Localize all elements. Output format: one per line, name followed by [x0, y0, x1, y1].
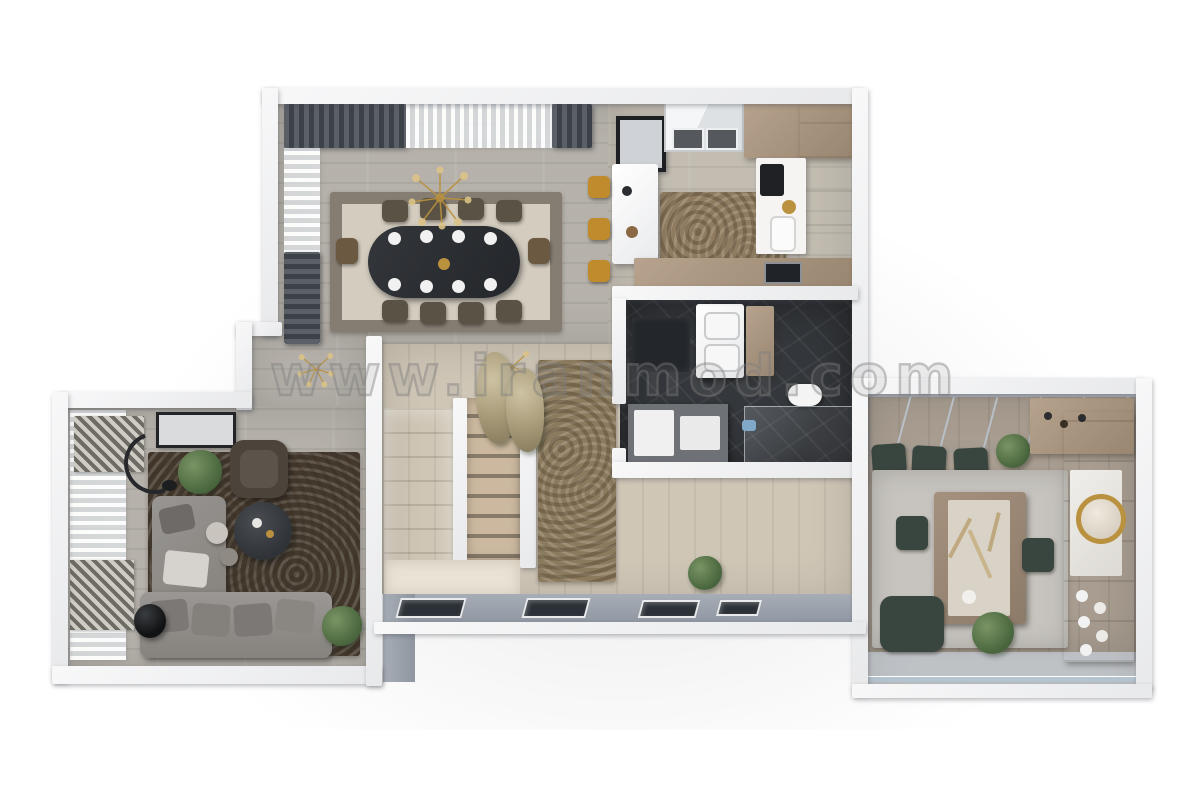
kitchen-window-mullion [706, 128, 738, 150]
coffee-machine [760, 164, 784, 196]
bathroom-shelf [746, 306, 774, 376]
shower-glass-screen [744, 406, 854, 464]
terrace-glass-railing [868, 676, 1136, 682]
drawer-front [634, 410, 674, 456]
kitchen-sink [770, 216, 796, 252]
display-plate [1078, 616, 1090, 628]
place-setting [420, 280, 433, 293]
wall-familyroom-west [852, 378, 868, 694]
place-setting [484, 232, 497, 245]
table-centerpiece [438, 258, 450, 270]
place-setting [388, 278, 401, 291]
display-plate [1094, 602, 1106, 614]
place-setting [452, 280, 465, 293]
family-armchair [880, 596, 944, 652]
drawer-front [680, 416, 720, 450]
wall-lounge-north [60, 392, 252, 408]
coffee-table-decor [252, 518, 262, 528]
bar-stool [588, 260, 610, 282]
gold-pendant-light-icon [296, 350, 336, 388]
kitchen-window-mullion [672, 128, 704, 150]
family-side-chair [1022, 538, 1054, 572]
lamp-head [162, 480, 177, 491]
wall-familyroom-north [852, 378, 1142, 394]
wall-lounge-west [52, 392, 68, 682]
kitchen-base-cabinet-run [634, 258, 854, 288]
dining-drape-top-right [552, 104, 592, 148]
sofa-cushion [191, 603, 231, 638]
family-side-chair [896, 516, 928, 550]
dining-chair [420, 302, 446, 324]
wall-bathroom-north [612, 286, 858, 300]
dining-chair [496, 300, 522, 322]
wall-south-edge [374, 622, 866, 634]
stair-landing [384, 560, 520, 596]
stair-divider-wall [453, 398, 467, 568]
place-setting [388, 232, 401, 245]
south-window [716, 600, 762, 616]
bar-stool [588, 176, 610, 198]
wall-lounge-south [52, 666, 382, 684]
wall-main-west [262, 88, 278, 336]
vanity-basin [704, 312, 740, 340]
wall-north [262, 88, 862, 104]
coffee-table-decor [266, 530, 274, 538]
side-table [206, 522, 228, 544]
side-table [220, 548, 238, 566]
place-setting [452, 230, 465, 243]
display-plate [1096, 630, 1108, 642]
place-setting [420, 230, 433, 243]
dining-drape-left-bottom [284, 252, 320, 344]
toilet [788, 384, 822, 406]
gold-bowl [782, 200, 796, 214]
place-setting [484, 278, 497, 291]
bathroom-bench [632, 318, 690, 372]
sofa-cushion [274, 598, 315, 634]
dining-sheer-top [406, 104, 552, 148]
sofa-cushion [233, 603, 273, 638]
built-in-oven [764, 262, 802, 284]
sofa-throw [162, 550, 209, 588]
sputnik-chandelier-icon [404, 166, 476, 230]
armchair-cushion [240, 450, 278, 488]
bath-accessory-blue [742, 420, 756, 431]
dining-chair [496, 200, 522, 222]
kitchen-island [612, 164, 658, 264]
display-plate [1076, 590, 1088, 602]
wall-familyroom-south [852, 684, 1152, 698]
display-plate [1080, 644, 1092, 656]
black-vase [134, 604, 166, 638]
dining-drape-top-left [284, 104, 406, 148]
hall-runner-rug [538, 360, 616, 582]
vanity-basin [704, 344, 740, 372]
south-window [638, 600, 701, 618]
island-decor [626, 226, 638, 238]
coffee-table [234, 502, 292, 560]
slat-blind [70, 560, 134, 630]
bottle [1044, 412, 1052, 420]
south-window [395, 598, 466, 618]
wall-bathroom-west-upper [612, 298, 626, 404]
south-window [521, 598, 590, 618]
round-gold-mirror-icon [1076, 494, 1126, 544]
dining-chair [382, 300, 408, 322]
island-decor [622, 186, 632, 196]
wall-familyroom-east [1136, 378, 1152, 690]
dining-end-chair [336, 238, 358, 264]
table-plate [962, 590, 976, 604]
wall-bathroom-south [612, 462, 858, 478]
floor-plan-render: www.iranmod.com [0, 0, 1200, 800]
bar-stool [588, 218, 610, 240]
dining-end-chair [528, 238, 550, 264]
dining-chair [458, 302, 484, 324]
